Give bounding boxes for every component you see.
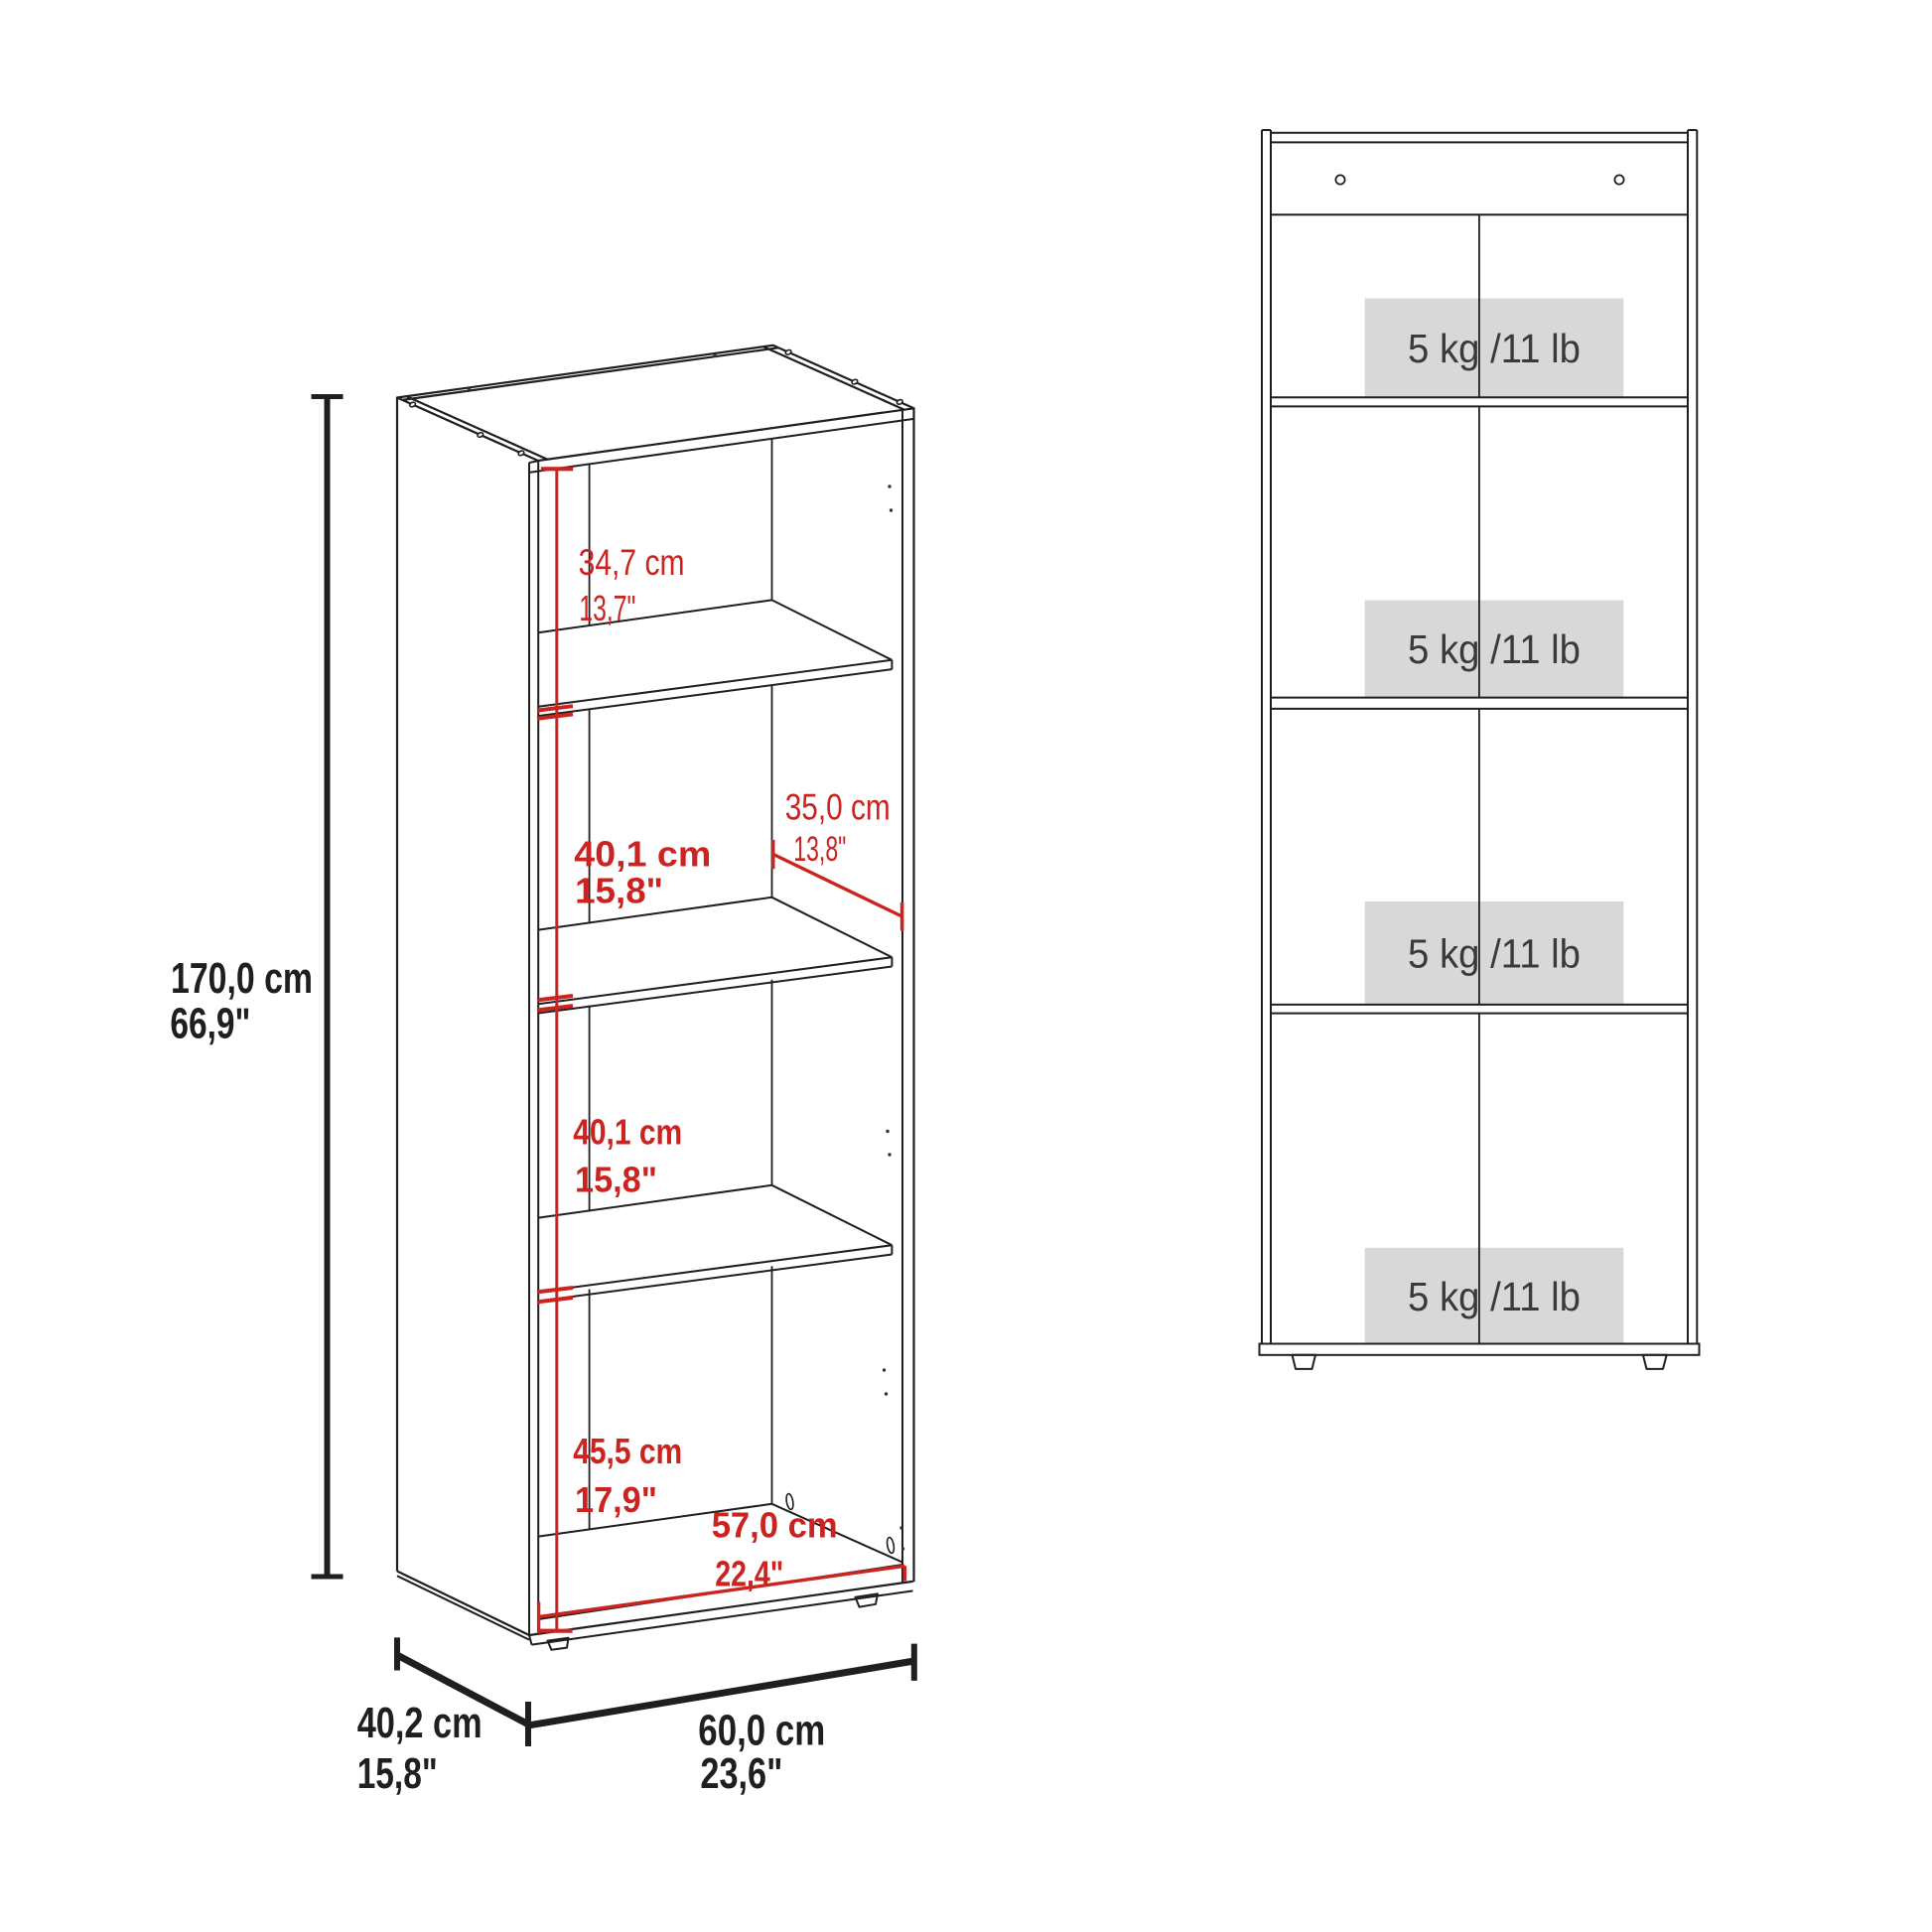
svg-text:17,9": 17,9" [575,1479,657,1520]
svg-text:22,4": 22,4" [715,1554,783,1594]
svg-text:5 kg /11 lb: 5 kg /11 lb [1408,931,1581,977]
svg-text:5 kg /11 lb: 5 kg /11 lb [1408,1274,1581,1319]
svg-text:34,7 cm: 34,7 cm [579,542,685,583]
svg-text:13,8": 13,8" [793,830,846,869]
svg-text:57,0 cm: 57,0 cm [712,1505,838,1546]
svg-text:40,1 cm: 40,1 cm [574,834,711,875]
svg-text:23,6": 23,6" [700,1749,782,1798]
svg-text:40,2 cm: 40,2 cm [357,1699,483,1747]
svg-text:15,8": 15,8" [575,871,663,911]
svg-text:35,0 cm: 35,0 cm [785,787,891,828]
svg-text:5 kg /11 lb: 5 kg /11 lb [1408,326,1581,371]
svg-text:170,0 cm: 170,0 cm [171,954,313,1003]
svg-text:13,7": 13,7" [579,588,635,628]
svg-text:15,8": 15,8" [575,1160,657,1200]
svg-text:5 kg /11 lb: 5 kg /11 lb [1408,626,1581,672]
svg-text:15,8": 15,8" [357,1749,438,1798]
svg-text:66,9": 66,9" [170,1000,250,1048]
svg-text:45,5 cm: 45,5 cm [573,1431,682,1471]
svg-text:40,1 cm: 40,1 cm [573,1112,682,1153]
svg-text:60,0 cm: 60,0 cm [698,1707,825,1755]
